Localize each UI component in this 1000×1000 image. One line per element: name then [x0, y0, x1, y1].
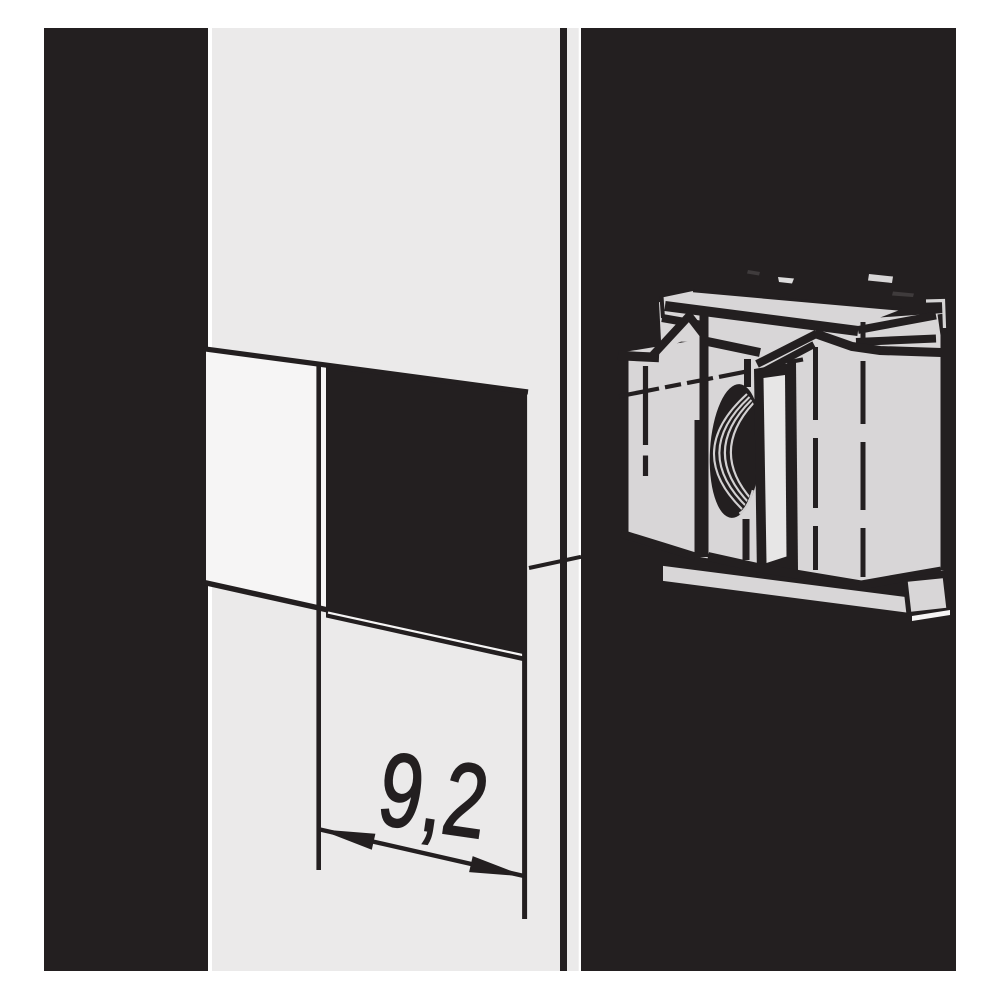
- svg-text:9,2: 9,2: [372, 731, 496, 861]
